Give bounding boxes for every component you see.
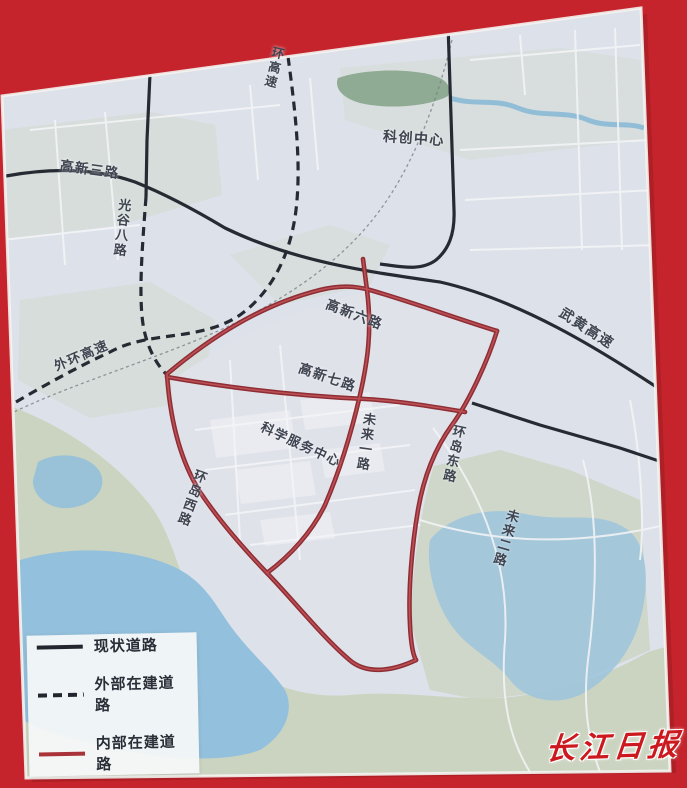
legend-label-internal: 内部在建道路 xyxy=(96,730,190,774)
legend-label-external: 外部在建道路 xyxy=(94,671,188,715)
legend-label-existing: 现状道路 xyxy=(94,634,158,656)
legend-item-internal: 内部在建道路 xyxy=(39,730,190,775)
legend-line-solid-red xyxy=(39,752,85,757)
map-photo: 高新三路 光谷八路 环高速 科创中心 外环高速 武黄高速 高新六路 高新七路 科… xyxy=(0,0,687,788)
legend-line-solid-black xyxy=(37,644,83,649)
legend-item-existing: 现状道路 xyxy=(37,633,187,657)
legend-panel: 现状道路 外部在建道路 内部在建道路 xyxy=(27,632,200,777)
legend-item-external: 外部在建道路 xyxy=(37,671,188,716)
changjiang-daily-watermark: 长江日报 xyxy=(544,720,685,769)
legend-line-dashed-black xyxy=(38,693,84,698)
place-label-kechuang-zhongxin: 科创中心 xyxy=(382,126,445,150)
